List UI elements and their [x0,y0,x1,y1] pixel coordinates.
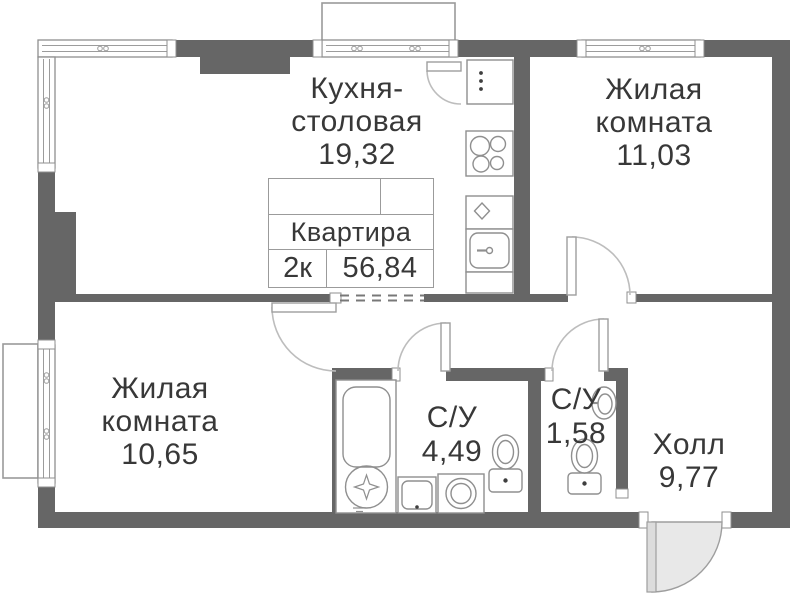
dining-table [269,179,433,215]
bathroom-big-door-leaf [441,323,450,371]
room-name-line: Кухня- [291,72,423,105]
wall-bath-top-1 [332,368,392,381]
room-name-line: Холл [653,428,726,461]
washing-machine [438,474,484,513]
window-living2 [38,345,55,483]
wall-bottom-2 [731,512,790,528]
apartment-total-area: 56,84 [327,250,433,287]
entrance-door [652,522,722,592]
wall-left-1 [38,168,55,345]
room-label-bathroom-big: С/У 4,49 [422,401,482,469]
room-name-line: столовая [291,105,423,138]
wall-top-2 [456,40,582,57]
wall-hall-right [630,294,772,302]
bathroom-big-door-arc [398,323,446,371]
wall-hall-mid [424,294,568,302]
entrance-door-leaf [647,522,656,592]
room-name-line: С/У [546,383,606,417]
room-area: 11,03 [596,139,713,172]
balcony-top [322,3,455,41]
room-name-line: Жилая [102,372,219,405]
wall-top-1 [172,40,320,57]
bathroom-small-door-arc [552,319,604,371]
floor-plan: Кухня- столовая 19,32 Жилая комната 11,0… [0,0,794,600]
room-label-living2: Жилая комната 10,65 [102,372,219,471]
apartment-rooms-count: 2к [269,250,327,287]
apartment-title: Квартира [269,215,433,250]
dining-table-cell [269,179,381,214]
fridge [467,60,513,104]
balcony-door-arc [427,71,461,104]
wall-pilaster [55,212,76,302]
room-area: 4,49 [422,435,482,469]
wall-bath-top-2 [446,368,545,381]
wall-left-2 [38,483,55,528]
balcony-door-leaf [427,62,461,71]
room-label-bathroom-small: С/У 1,58 [546,383,606,451]
room-label-kitchen: Кухня- столовая 19,32 [291,72,423,171]
window-kitchen-balcony [322,40,456,57]
wall-hall-left [55,294,332,302]
room-name-line: комната [596,106,713,139]
balcony-left [3,344,38,478]
wall-kitchen-living1 [514,57,530,302]
wall-bath2-right [616,381,628,489]
bathroom-sink-cabinet [398,477,436,513]
room-name-line: С/У [422,401,482,435]
apartment-title-block: Квартира 2к 56,84 [268,178,434,288]
kitchen-opening-dashes [340,296,424,301]
wall-bath-divider [528,381,541,512]
wall-right [772,40,790,528]
living2-door-arc [272,307,336,371]
kitchen-counter [466,196,513,229]
kitchen-cabinet [466,272,513,293]
living1-door-leaf [567,237,576,295]
living2-door-leaf [272,303,336,312]
vent-duct-block [200,57,290,74]
room-area: 10,65 [102,438,219,471]
kitchen-sink [466,229,513,272]
room-label-hall: Холл 9,77 [653,428,726,494]
bathroom-small-door-leaf [599,319,608,371]
room-area: 1,58 [546,417,606,451]
living1-door-arc [572,237,630,295]
wall-bottom-1 [54,512,639,528]
stove [466,131,513,176]
room-area: 19,32 [291,138,423,171]
room-label-living1: Жилая комната 11,03 [596,73,713,172]
toilet-big-bathroom [489,435,522,492]
room-area: 9,77 [653,461,726,494]
room-name-line: Жилая [596,73,713,106]
dining-table-cell [381,179,433,214]
window-corner-vertical [38,57,55,168]
room-name-line: комната [102,405,219,438]
bathtub [336,380,396,513]
